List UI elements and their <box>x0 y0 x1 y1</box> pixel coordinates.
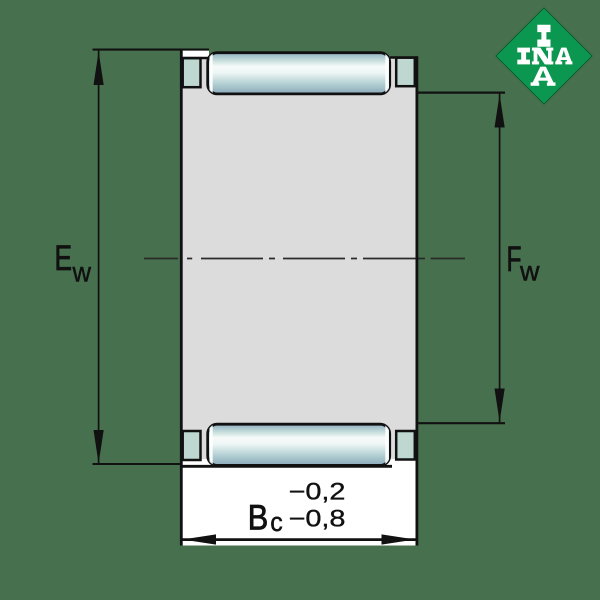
svg-text:w: w <box>72 257 92 288</box>
svg-text:−0,8: −0,8 <box>289 506 346 533</box>
svg-text:B: B <box>248 499 268 538</box>
svg-text:w: w <box>519 256 540 287</box>
svg-text:E: E <box>55 239 73 278</box>
svg-text:c: c <box>270 507 283 537</box>
svg-text:−0,2: −0,2 <box>289 479 346 506</box>
